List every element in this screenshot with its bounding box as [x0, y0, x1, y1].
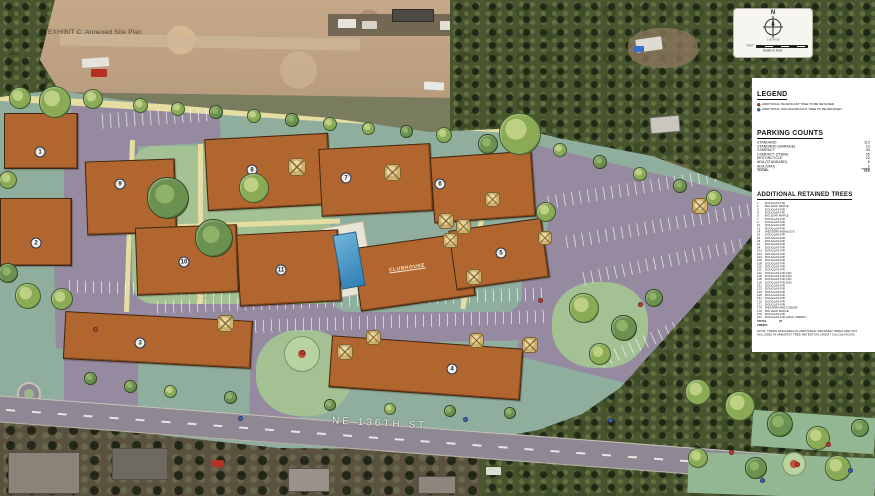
deciduous-tree-icon: [217, 315, 234, 332]
significant-tree-marker: [729, 450, 734, 455]
trees-total-row: TOTAL TREES: 37: [757, 319, 871, 327]
tree-icon: [504, 407, 516, 419]
deciduous-tree-icon: [469, 333, 484, 348]
building-8: [204, 133, 332, 211]
tree-icon: [239, 173, 269, 203]
legend-items: ADDITIONAL SIGNIFICANT TREE TO BE RETAIN…: [757, 102, 871, 112]
tree-icon: [0, 171, 17, 189]
tree-icon: [589, 343, 611, 365]
tree-icon: [83, 89, 103, 109]
building-4: [328, 335, 523, 400]
north-arrow-box: N 0 20 40 80 FEET Scale In Feet: [733, 8, 813, 58]
tree-icon: [323, 117, 337, 131]
tree-icon: [536, 202, 556, 222]
tree-icon: [745, 457, 767, 479]
parking-row-label: TOTAL: [757, 169, 769, 174]
tree-icon: [285, 113, 299, 127]
tree-species: DOUGLAS-FIR (HALF CREDIT): [765, 316, 807, 319]
parking-row: TOTAL 216: [757, 169, 870, 174]
tree-icon: [324, 399, 336, 411]
tree-icon: [593, 155, 607, 169]
site-plan-page: CLUBHOUSE 1 2 3 4 5 6 7 8 9 10 11 NE 136…: [0, 0, 875, 496]
tree-icon: [611, 315, 637, 341]
trees-note: NOTE: TREES SPECIFIED AS ADDITIONAL RETA…: [757, 330, 871, 337]
building-number-badge: 10: [179, 257, 190, 268]
tree-icon: [633, 167, 647, 181]
deciduous-tree-icon: [466, 269, 482, 285]
deciduous-tree-icon: [692, 198, 708, 214]
building-number-badge: 7: [341, 173, 352, 184]
non-significant-tree-marker: [760, 478, 765, 483]
building-number-badge: 3: [135, 338, 146, 349]
legend-tree-dot-icon: [757, 108, 761, 112]
tree-icon: [436, 127, 452, 143]
tree-icon: [706, 190, 722, 206]
deciduous-tree-icon: [522, 337, 538, 353]
house-roof: [8, 452, 80, 494]
white-car-icon: [486, 467, 501, 475]
deciduous-tree-icon: [288, 158, 306, 176]
retained-trees-list: 1 DOUGLAS-FIR 2 BIG LEAF MAPLE 3 DOUGLAS…: [757, 202, 871, 327]
tree-icon: [362, 122, 375, 135]
tree-icon: [851, 419, 869, 437]
feet-label: FEET: [747, 45, 754, 48]
scale-ticks: 0 20 40 80: [767, 39, 780, 41]
tree-icon: [569, 293, 599, 323]
significant-tree-marker: [538, 298, 543, 303]
deciduous-tree-icon: [337, 344, 353, 360]
building-7: [318, 143, 433, 217]
tree-icon: [478, 134, 498, 154]
deciduous-tree-icon: [366, 330, 381, 345]
trailer-icon: [392, 9, 434, 22]
non-significant-tree-marker: [463, 417, 468, 422]
tree-icon: [51, 288, 73, 310]
deciduous-tree-icon: [538, 231, 552, 245]
tree-icon: [171, 102, 185, 116]
building-number-badge: 6: [435, 179, 446, 190]
tree-icon: [725, 391, 755, 421]
tree-icon: [39, 86, 71, 118]
compass-icon: [762, 16, 784, 38]
shed-icon: [649, 115, 680, 135]
building-11: [236, 229, 342, 306]
tree-icon: [133, 98, 148, 113]
tree-icon: [645, 289, 663, 307]
tree-icon: [164, 385, 177, 398]
tree-icon: [673, 179, 687, 193]
house-roof: [418, 476, 456, 494]
tree-icon: [247, 109, 261, 123]
exhibit-title: EXHIBIT C: Annexed Site Plan: [48, 29, 142, 36]
tree-icon: [224, 391, 237, 404]
building-number-badge: 11: [276, 265, 287, 276]
legend-item-label: ADDITIONAL NON-SIGNIFICANT TREE TO BE RE…: [762, 107, 842, 112]
non-significant-tree-marker: [608, 418, 613, 423]
truck-icon: [424, 81, 444, 90]
retained-trees-title: ADDITIONAL RETAINED TREES: [757, 191, 852, 200]
trees-total-label: TOTAL TREES:: [757, 319, 765, 327]
rv-icon: [82, 57, 110, 68]
house-roof: [112, 448, 168, 480]
tree-icon: [553, 143, 567, 157]
house-roof: [288, 468, 330, 492]
non-significant-tree-marker: [848, 468, 853, 473]
tree-icon: [767, 411, 793, 437]
tree-icon: [685, 379, 711, 405]
tree-icon: [9, 87, 31, 109]
non-significant-tree-marker: [238, 416, 243, 421]
tree-icon: [195, 219, 233, 257]
tree-icon: [15, 283, 41, 309]
trees-total-value: 37: [779, 319, 782, 327]
info-panel: LEGEND ADDITIONAL SIGNIFICANT TREE TO BE…: [752, 78, 875, 352]
truck-icon: [362, 21, 377, 29]
truck-icon: [338, 19, 356, 28]
significant-tree-marker: [795, 462, 800, 467]
tree-icon: [499, 113, 541, 155]
parking-table: STANDARD 110 STANDARD (GARAGE) 13 COMPAC…: [757, 141, 870, 173]
legend-item: ADDITIONAL NON-SIGNIFICANT TREE TO BE RE…: [757, 107, 871, 112]
tree-icon: [384, 403, 396, 415]
deciduous-tree-icon: [384, 164, 401, 181]
corner-playground: [782, 452, 806, 476]
red-truck-icon: [91, 69, 107, 77]
building-number-badge: 9: [115, 179, 126, 190]
building-number-badge: 4: [447, 364, 458, 375]
legend-title: LEGEND: [757, 91, 787, 100]
deciduous-tree-icon: [443, 233, 458, 248]
scale-bar: [756, 45, 808, 48]
tree-icon: [84, 372, 97, 385]
legend-tree-dot-icon: [757, 103, 761, 107]
red-car-icon: [211, 460, 224, 467]
tree-icon: [825, 455, 851, 481]
deciduous-tree-icon: [438, 213, 454, 229]
tree-icon: [209, 105, 223, 119]
building-number-badge: 1: [35, 147, 46, 158]
tree-icon: [124, 380, 137, 393]
building-number-badge: 2: [31, 238, 42, 249]
significant-tree-marker: [826, 442, 831, 447]
building-2: [0, 198, 72, 266]
significant-tree-marker: [300, 350, 305, 355]
tree-icon: [400, 125, 413, 138]
blue-tarp-icon: [634, 46, 644, 52]
parking-row-value: 216: [861, 169, 869, 174]
scale-caption: Scale In Feet: [763, 50, 782, 52]
tree-icon: [688, 448, 708, 468]
tree-icon: [147, 177, 189, 219]
significant-tree-marker: [638, 302, 643, 307]
deciduous-tree-icon: [485, 192, 500, 207]
tree-icon: [444, 405, 456, 417]
building-1: [4, 113, 78, 169]
significant-tree-marker: [93, 327, 98, 332]
building-number-badge: 5: [496, 248, 507, 259]
parking-counts-title: PARKING COUNTS: [757, 130, 823, 139]
deciduous-tree-icon: [456, 219, 471, 234]
